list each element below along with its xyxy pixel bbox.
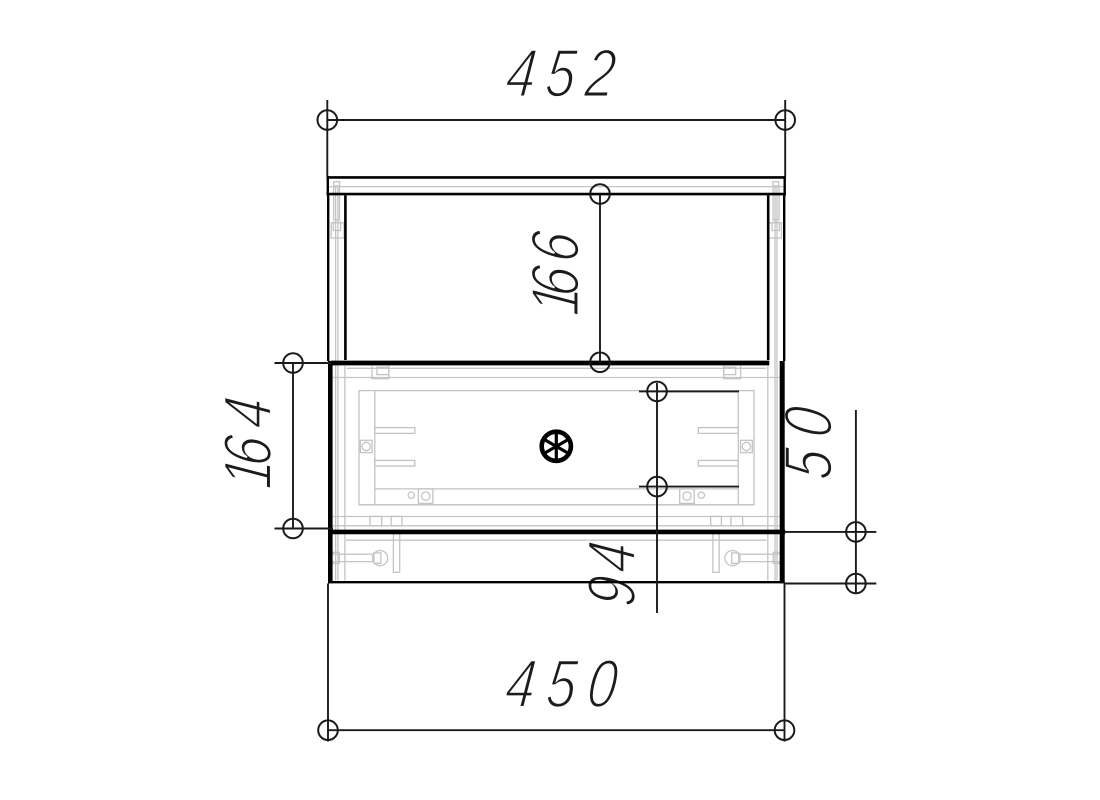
svg-text:94: 94 xyxy=(574,533,650,610)
svg-text:166: 166 xyxy=(518,222,594,318)
svg-text:450: 450 xyxy=(502,646,633,722)
svg-text:452: 452 xyxy=(503,35,630,111)
svg-text:164: 164 xyxy=(210,385,286,492)
